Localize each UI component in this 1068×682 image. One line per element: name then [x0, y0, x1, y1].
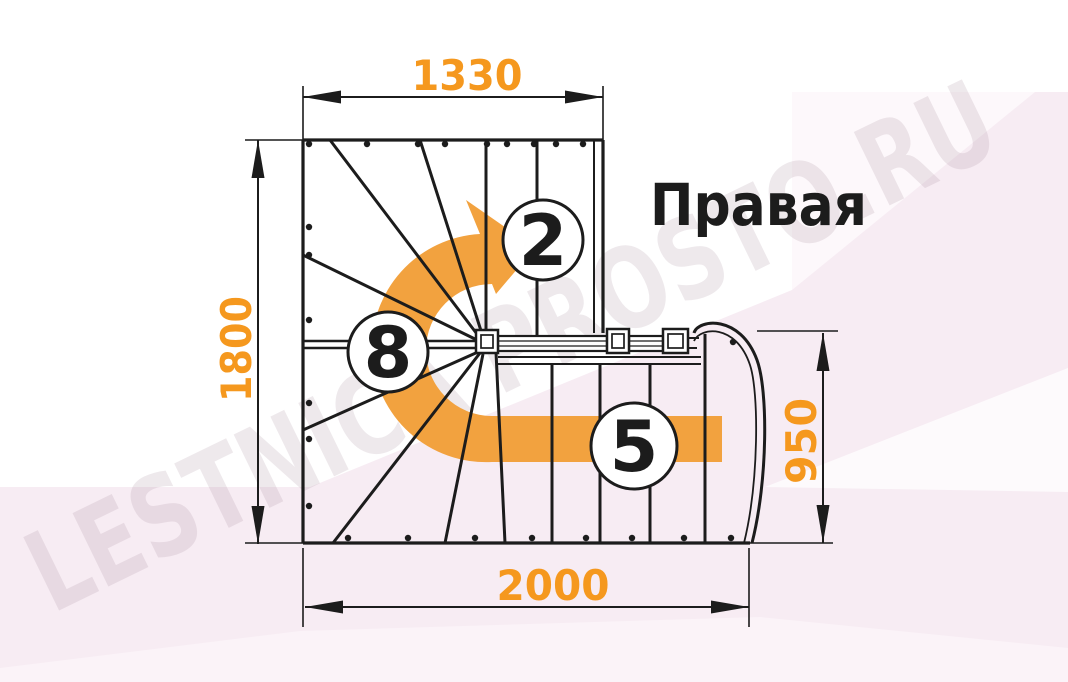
dimension-label-top: 1330 [412, 51, 523, 100]
lower-flight-count-label: 5 [610, 406, 659, 488]
dimension-label-bottom: 2000 [497, 561, 610, 610]
staircase-plan-diagram: LESTNICA PROSTO.RU [0, 0, 1068, 682]
diagram-svg: LESTNICA PROSTO.RU [0, 0, 1068, 682]
dimension-label-left: 1800 [212, 296, 261, 402]
dimension-label-right: 950 [777, 398, 826, 484]
newel-post-2 [607, 329, 629, 353]
newel-post-3 [663, 329, 688, 353]
handrail-segment-1 [498, 336, 607, 351]
upper-flight-count-label: 2 [519, 200, 568, 282]
handrail-segment-2 [629, 336, 663, 351]
center-newel-post [476, 330, 498, 353]
page-title: Правая [650, 171, 867, 239]
winder-count-label: 8 [364, 312, 413, 394]
